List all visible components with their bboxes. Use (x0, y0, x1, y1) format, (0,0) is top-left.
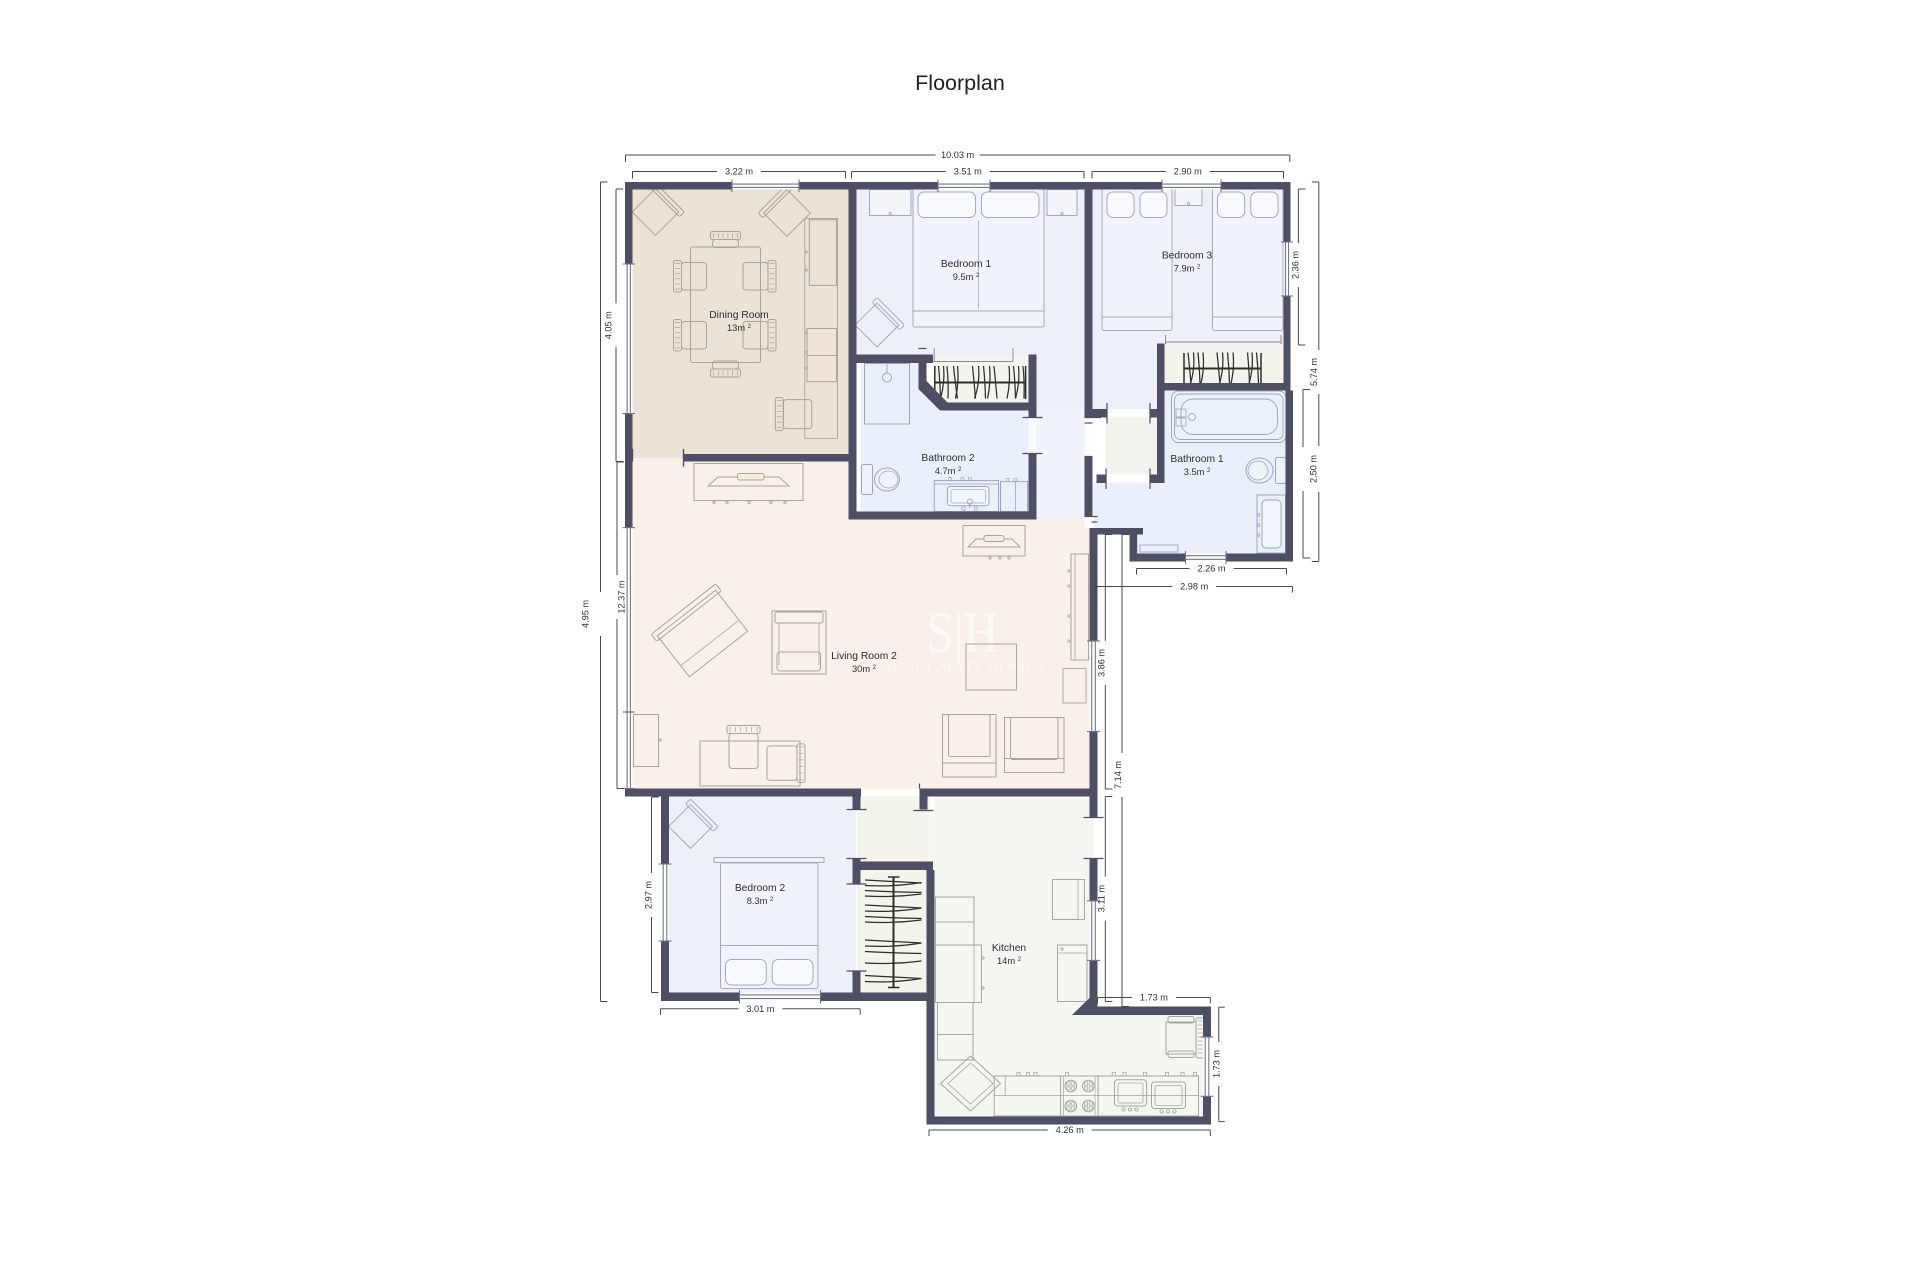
svg-text:2.36 m: 2.36 m (1290, 251, 1300, 279)
svg-text:Dining Room: Dining Room (709, 310, 769, 321)
svg-text:Bathroom 2: Bathroom 2 (921, 453, 975, 464)
svg-text:9.5m 2: 9.5m 2 (953, 272, 980, 282)
svg-text:4.95 m: 4.95 m (581, 600, 591, 628)
svg-text:2.97 m: 2.97 m (644, 881, 654, 909)
svg-text:2.90 m: 2.90 m (1174, 167, 1202, 177)
svg-text:3.5m 2: 3.5m 2 (1184, 467, 1211, 477)
svg-text:1.73 m: 1.73 m (1140, 993, 1168, 1003)
svg-text:Floorplan: Floorplan (915, 71, 1005, 95)
svg-text:Bathroom 1: Bathroom 1 (1170, 454, 1224, 465)
svg-text:Living Room 2: Living Room 2 (831, 651, 897, 662)
svg-text:2.50 m: 2.50 m (1309, 455, 1319, 483)
svg-text:Bedroom 3: Bedroom 3 (1162, 251, 1213, 262)
svg-text:2.26 m: 2.26 m (1197, 564, 1225, 574)
svg-text:5.74 m: 5.74 m (1309, 358, 1319, 386)
svg-text:3.51 m: 3.51 m (954, 167, 982, 177)
svg-text:3.01 m: 3.01 m (746, 1004, 774, 1014)
svg-text:3.22 m: 3.22 m (725, 167, 753, 177)
svg-text:7.14 m: 7.14 m (1113, 761, 1123, 789)
svg-text:Bedroom 2: Bedroom 2 (735, 883, 786, 894)
svg-text:7.9m 2: 7.9m 2 (1174, 264, 1201, 274)
svg-text:Bedroom 1: Bedroom 1 (941, 259, 992, 270)
svg-text:Kitchen: Kitchen (992, 943, 1027, 954)
svg-text:3.86 m: 3.86 m (1096, 649, 1106, 677)
svg-text:3.11 m: 3.11 m (1096, 884, 1106, 912)
svg-text:1.73 m: 1.73 m (1212, 1050, 1222, 1078)
svg-text:12.37 m: 12.37 m (617, 580, 627, 614)
svg-text:4.26 m: 4.26 m (1056, 1125, 1084, 1135)
svg-text:S|H: S|H (927, 600, 999, 665)
svg-text:4.7m 2: 4.7m 2 (935, 466, 962, 476)
svg-text:SINGULARITY HOMES: SINGULARITY HOMES (878, 662, 1043, 674)
svg-text:4.05 m: 4.05 m (603, 311, 613, 339)
svg-text:2.98 m: 2.98 m (1180, 582, 1208, 592)
svg-text:8.3m 2: 8.3m 2 (747, 896, 774, 906)
svg-text:10.03 m: 10.03 m (941, 150, 975, 160)
